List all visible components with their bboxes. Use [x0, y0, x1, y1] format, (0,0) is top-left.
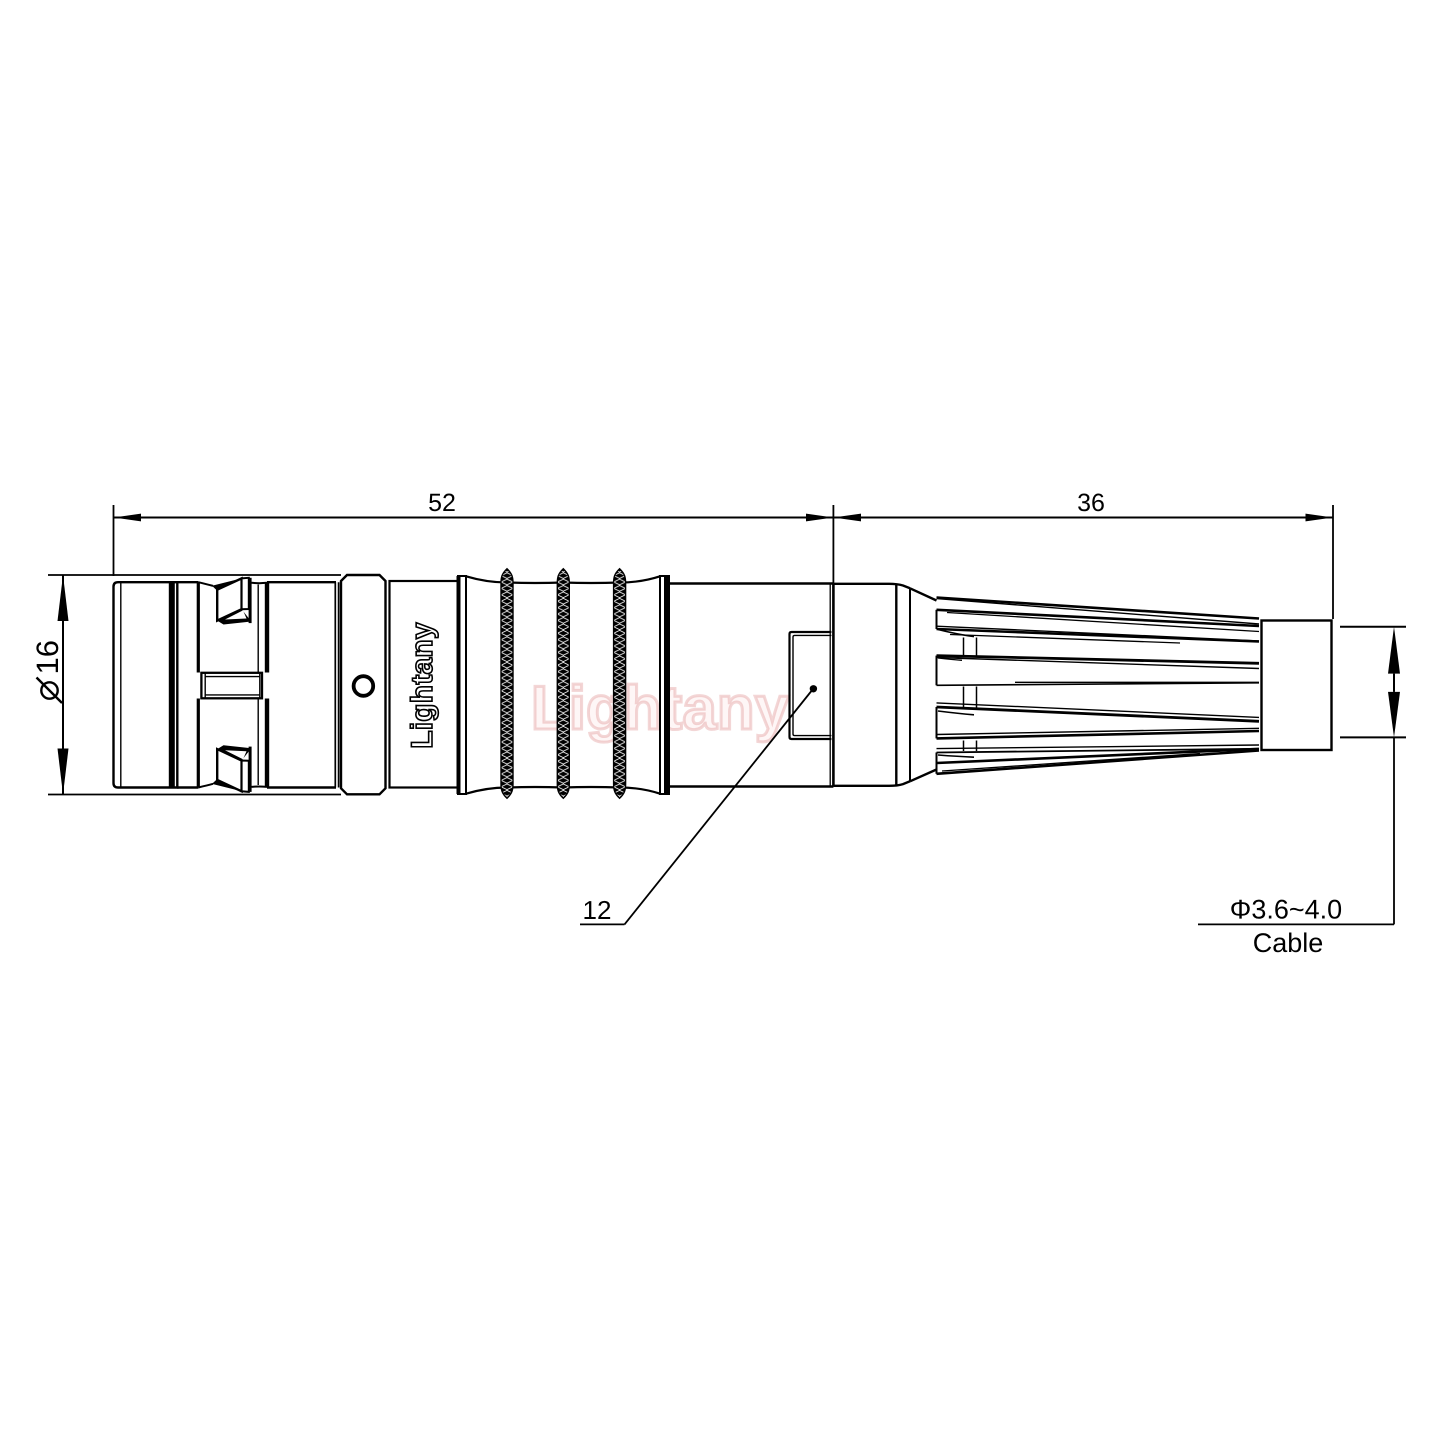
svg-text:Cable: Cable: [1253, 928, 1324, 958]
svg-text:16: 16: [30, 640, 65, 674]
svg-text:Φ3.6~4.0: Φ3.6~4.0: [1230, 895, 1342, 925]
svg-text:12: 12: [583, 895, 612, 925]
svg-text:52: 52: [428, 489, 456, 517]
svg-text:Lightany: Lightany: [406, 622, 439, 749]
svg-text:36: 36: [1077, 489, 1105, 517]
